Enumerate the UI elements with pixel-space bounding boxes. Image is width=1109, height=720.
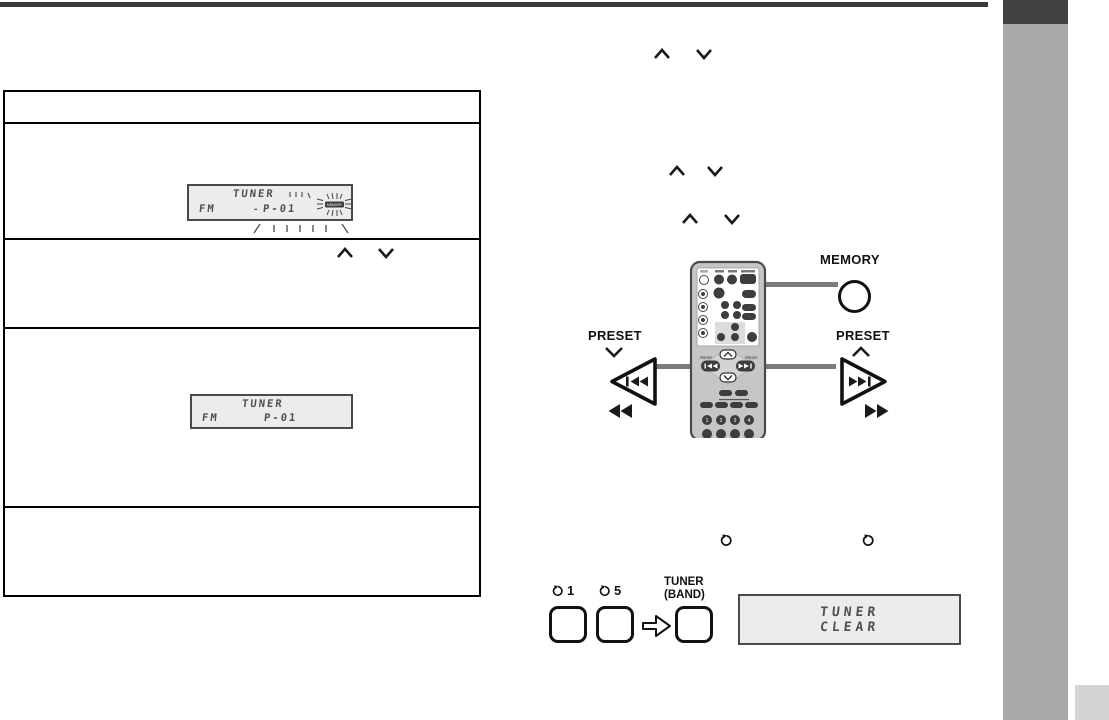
table-row-step1 <box>5 124 479 240</box>
chevron-up-icon <box>653 48 671 60</box>
lcd-display-clear: TUNER CLEAR <box>738 594 961 645</box>
table-header-row <box>5 92 479 124</box>
chevron-down-icon <box>695 48 713 60</box>
then-arrow-icon <box>640 611 674 641</box>
rotary-icon <box>599 585 611 597</box>
memory-callout-label: MEMORY <box>820 252 880 267</box>
chevron-down-icon <box>606 348 622 356</box>
lcd2-band: FM <box>201 412 219 424</box>
preset-down-button <box>598 340 664 432</box>
page-number-block <box>1075 685 1109 720</box>
remote-preset-right-label: PRESET <box>745 356 758 360</box>
numeric-5-button <box>596 606 634 643</box>
numeric-1-button-label: 1 <box>552 583 575 598</box>
tuner-band-button-label: TUNER (BAND) <box>664 576 705 601</box>
steps-table <box>3 90 481 597</box>
lcd-display-blinking: TUNER FM - P-01 MEMORY <box>187 184 353 221</box>
table-row-step2 <box>5 240 479 329</box>
section-sidebar-tab <box>1003 0 1068 24</box>
preset-right-callout-line <box>757 364 836 369</box>
lcd2-preset: P-01 <box>263 412 298 424</box>
manual-page: TUNER FM - P-01 MEMORY <box>0 0 1109 720</box>
rewind-icon <box>609 404 621 418</box>
remote-digit-1: 1 <box>706 418 709 424</box>
chevron-up-icon <box>668 165 686 177</box>
remote-digit-3: 3 <box>734 418 737 424</box>
lcd1-band: FM <box>198 203 216 215</box>
remote-control-illustration: PRESET PRESET 1 2 3 4 <box>688 260 768 438</box>
chevron-down-icon <box>377 247 395 259</box>
memory-indicator-blinking-icon: MEMORY <box>317 191 353 218</box>
lcd-display-stored: TUNER FM P-01 <box>190 394 353 429</box>
numeric-1-button <box>549 606 587 643</box>
lcd1-blink-dash: - <box>252 205 260 215</box>
fast-forward-icon <box>865 404 877 418</box>
chevron-up-icon <box>336 247 354 259</box>
remote-preset-left-label: PRESET <box>700 356 713 360</box>
numeric-5-button-label: 5 <box>599 583 622 598</box>
chevron-up-icon <box>681 213 699 225</box>
blink-ticks-below-icon <box>250 221 362 236</box>
chevron-down-icon <box>723 213 741 225</box>
lcd1-indicator-label: MEMORY <box>327 203 343 207</box>
rotary-icon <box>552 585 564 597</box>
section-sidebar <box>1003 0 1068 720</box>
top-rule <box>0 2 988 7</box>
lcd1-preset: P-01 <box>262 203 297 215</box>
lcd2-source: TUNER <box>241 398 284 410</box>
rotary-icon <box>862 534 875 547</box>
remote-digit-4: 4 <box>748 418 751 424</box>
blink-ticks-icon <box>287 191 313 199</box>
lcd3-line1: TUNER <box>819 605 880 620</box>
rotary-icon <box>720 534 733 547</box>
preset-up-button <box>833 340 899 432</box>
lcd3-line2: CLEAR <box>819 620 880 635</box>
tuner-band-button <box>675 606 713 643</box>
remote-digit-2: 2 <box>720 418 723 424</box>
table-row-note <box>5 508 479 595</box>
lcd1-source: TUNER <box>232 188 275 200</box>
chevron-down-icon <box>706 165 724 177</box>
memory-button <box>838 280 871 313</box>
chevron-up-icon <box>853 348 869 356</box>
